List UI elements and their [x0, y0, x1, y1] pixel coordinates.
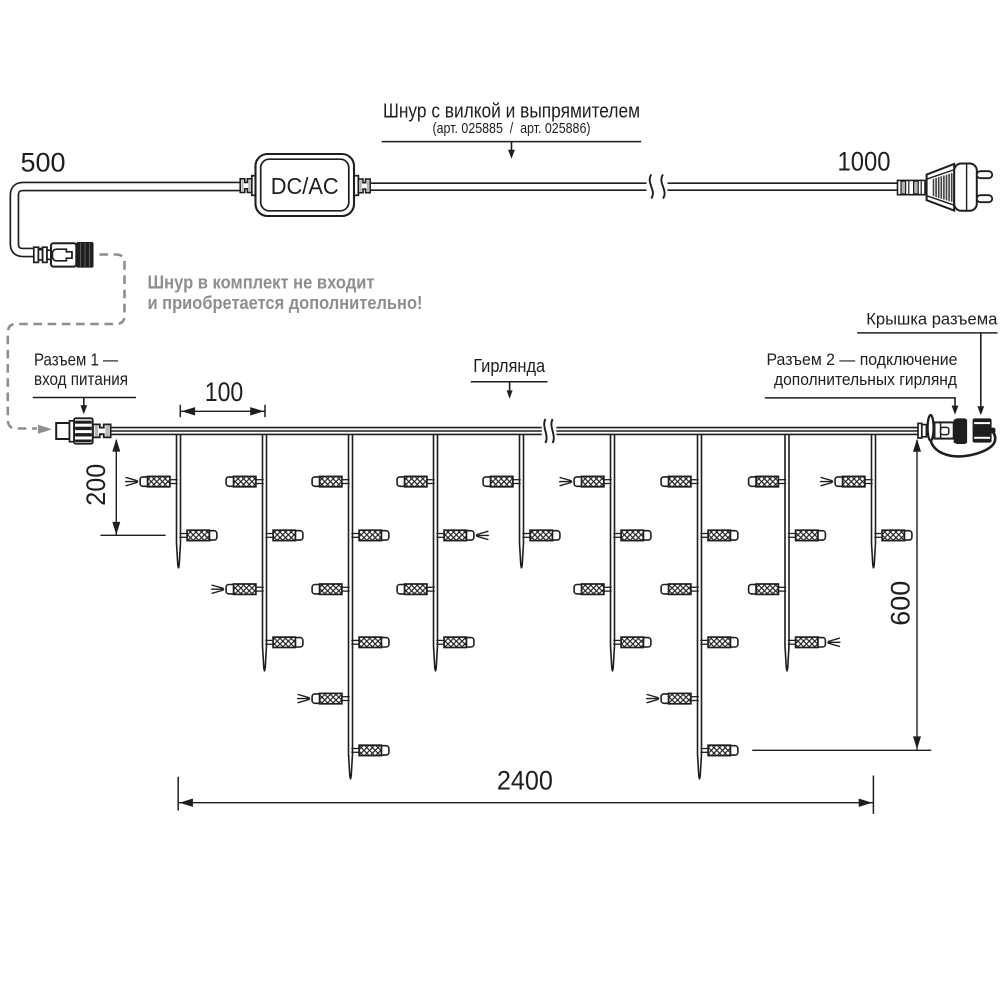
- svg-text:Разъем 1 —: Разъем 1 —: [34, 350, 118, 370]
- svg-text:и приобретается дополнительно!: и приобретается дополнительно!: [148, 292, 423, 313]
- svg-text:200: 200: [81, 464, 111, 506]
- svg-text:500: 500: [21, 148, 66, 178]
- svg-text:DC/AC: DC/AC: [271, 173, 339, 199]
- svg-text:(арт. 025885 / арт. 025886): (арт. 025885 / арт. 025886): [433, 120, 591, 137]
- svg-text:вход питания: вход питания: [34, 369, 128, 389]
- svg-text:2400: 2400: [497, 765, 553, 795]
- svg-text:100: 100: [205, 377, 244, 407]
- svg-text:Шнур с вилкой и выпрямителем: Шнур с вилкой и выпрямителем: [383, 100, 640, 122]
- svg-text:Крышка разъема: Крышка разъема: [866, 311, 998, 329]
- svg-text:600: 600: [886, 581, 916, 626]
- svg-text:Шнур в комплект не входит: Шнур в комплект не входит: [148, 272, 375, 293]
- svg-text:1000: 1000: [838, 147, 891, 177]
- svg-text:Гирлянда: Гирлянда: [473, 356, 546, 376]
- svg-text:Разъем 2 — подключение: Разъем 2 — подключение: [767, 351, 958, 369]
- svg-text:дополнительных гирлянд: дополнительных гирлянд: [774, 371, 957, 389]
